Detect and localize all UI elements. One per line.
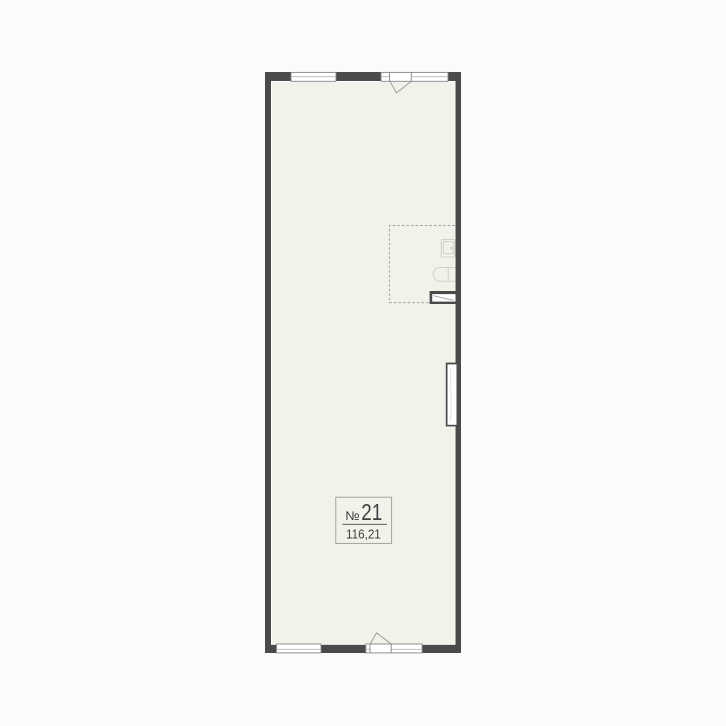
svg-text:21: 21 xyxy=(361,499,382,525)
svg-text:№: № xyxy=(345,509,360,523)
svg-text:116,21: 116,21 xyxy=(346,527,381,541)
